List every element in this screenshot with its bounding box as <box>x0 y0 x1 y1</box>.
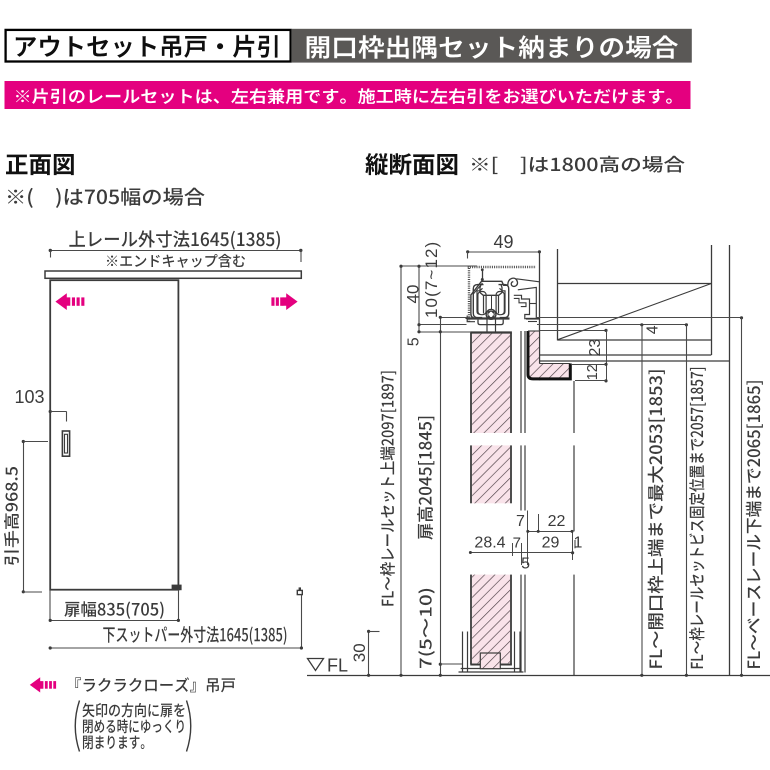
svg-text:29: 29 <box>542 535 560 552</box>
svg-text:FL: FL <box>327 656 348 676</box>
svg-text:10(7~12): 10(7~12) <box>422 241 441 318</box>
svg-text:23: 23 <box>587 339 604 357</box>
svg-text:12: 12 <box>585 364 601 380</box>
svg-text:1: 1 <box>573 535 582 552</box>
svg-text:7: 7 <box>513 535 521 552</box>
svg-text:40: 40 <box>404 285 423 304</box>
svg-text:103: 103 <box>14 387 44 407</box>
svg-text:28.4: 28.4 <box>474 535 505 552</box>
svg-text:30: 30 <box>350 643 369 662</box>
svg-text:49: 49 <box>493 232 513 252</box>
svg-text:5: 5 <box>406 337 423 346</box>
svg-text:22: 22 <box>548 513 566 530</box>
svg-text:5: 5 <box>521 556 530 573</box>
svg-text:7: 7 <box>516 513 525 530</box>
svg-text:4: 4 <box>645 325 662 334</box>
